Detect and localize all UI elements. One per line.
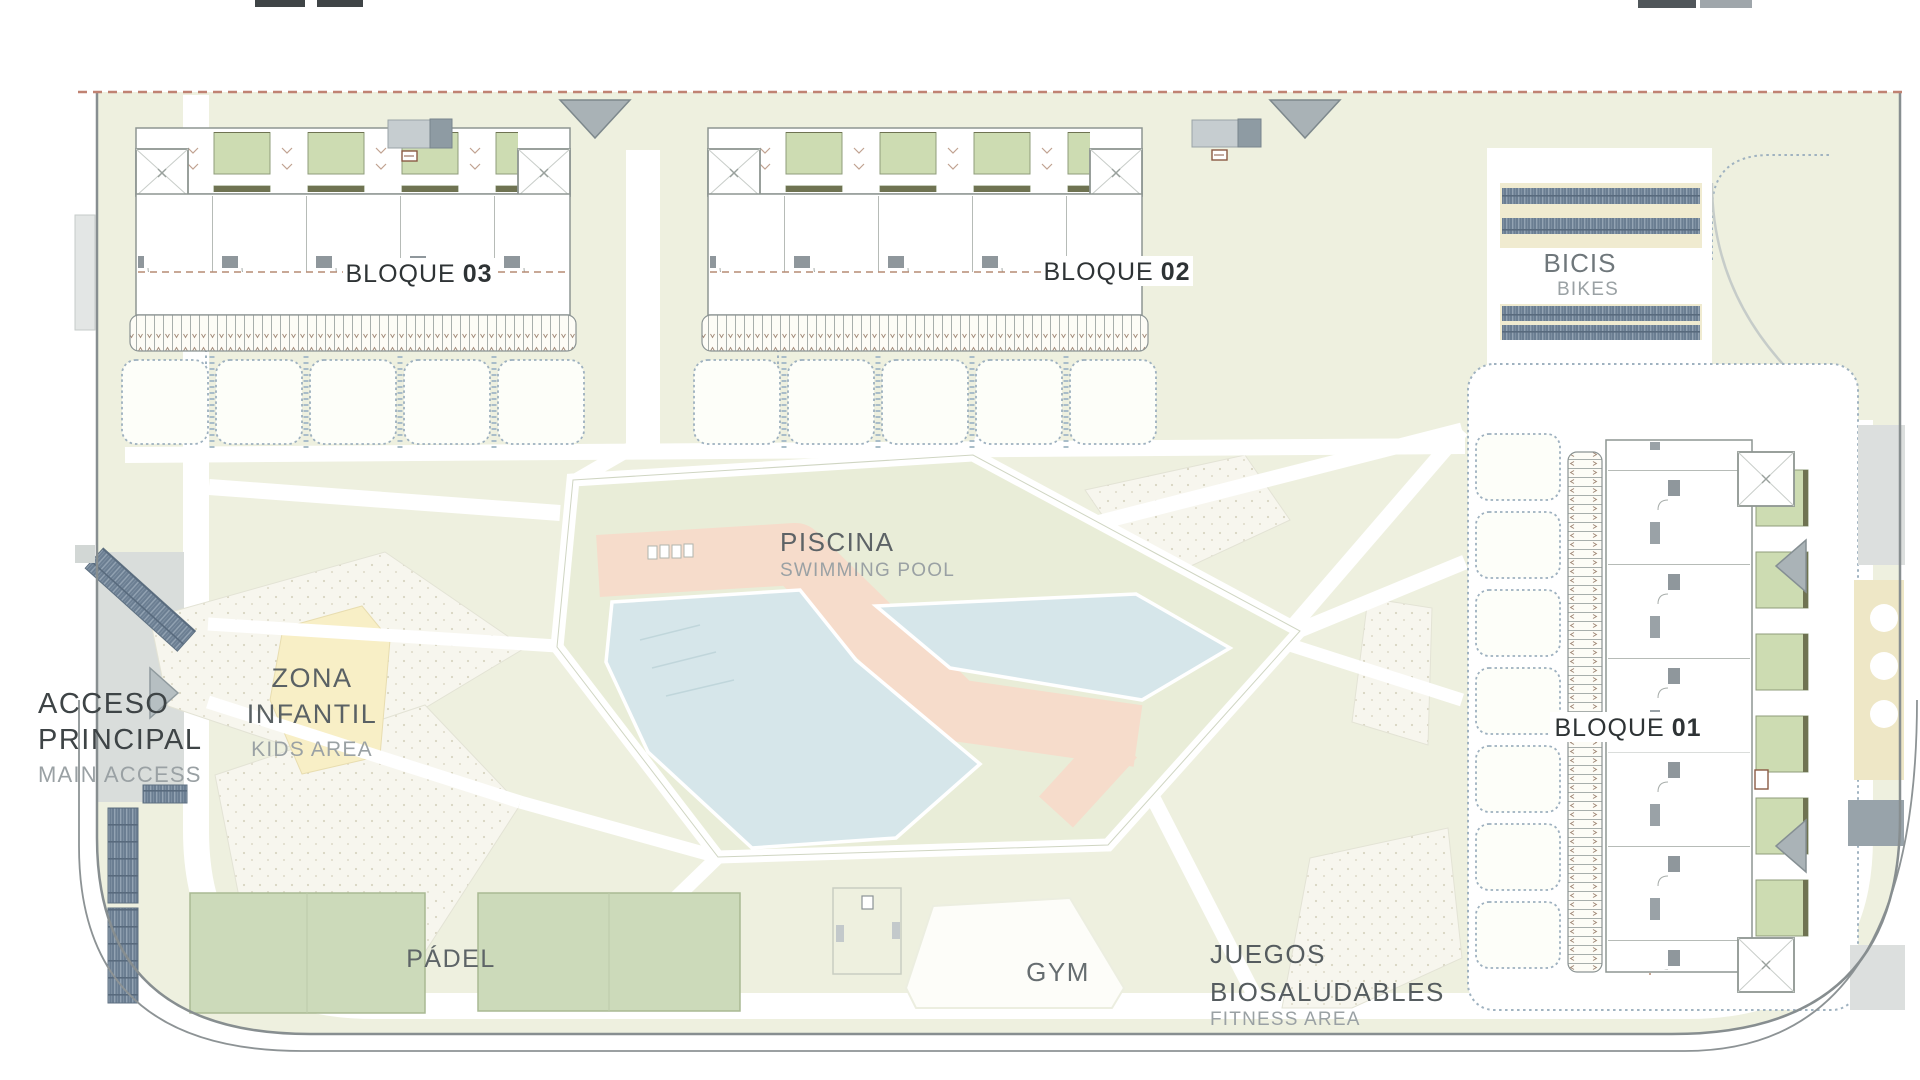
pool-label-es: PISCINA	[780, 527, 895, 557]
fitness-label-es2: BIOSALUDABLES	[1210, 977, 1445, 1007]
site-plan-page: BLOQUE03 BLOQUE02 BLOQUE01 BICIS BIKES P…	[0, 0, 1920, 1080]
pool-label-en: SWIMMING POOL	[780, 560, 955, 581]
bike-rack	[1502, 188, 1700, 204]
meter-icon	[1755, 770, 1768, 789]
bloque-02-building	[694, 128, 1156, 448]
elevator-core-icon	[1738, 452, 1794, 506]
gym-label: GYM	[1026, 957, 1090, 987]
kids-label-es2: INFANTIL	[247, 699, 378, 729]
padel-label: PÁDEL	[406, 944, 495, 973]
kids-label-es1: ZONA	[271, 663, 352, 693]
bikes-label-es: BICIS	[1544, 248, 1617, 278]
bus-bay	[75, 215, 95, 330]
bloque-02-label: BLOQUE02	[1043, 258, 1190, 286]
bloque-01-building	[1468, 364, 1858, 1010]
bikes-label-en: BIKES	[1557, 279, 1619, 300]
kids-label-en: KIDS AREA	[251, 738, 373, 761]
bike-rack	[1502, 218, 1700, 234]
bike-rack	[1502, 325, 1700, 340]
street-parking	[143, 785, 187, 803]
access-label-es1: ACCESO	[38, 688, 169, 720]
garden-plots	[1476, 434, 1560, 968]
bike-rack	[1502, 306, 1700, 321]
bloque-01-label: BLOQUE01	[1554, 714, 1701, 742]
fitness-label-es1: JUEGOS	[1210, 939, 1326, 969]
fitness-label-en: FITNESS AREA	[1210, 1009, 1361, 1030]
site-plan-canvas: BLOQUE03 BLOQUE02 BLOQUE01 BICIS BIKES P…	[0, 0, 1920, 1080]
access-label-en: MAIN ACCESS	[38, 762, 202, 787]
elevator-core-icon	[1738, 938, 1794, 992]
kerb-detail	[75, 545, 95, 563]
access-label-es2: PRINCIPAL	[38, 724, 202, 756]
block-units	[1608, 442, 1750, 970]
bloque-03-label: BLOQUE03	[345, 260, 492, 288]
street-parking	[108, 808, 138, 903]
